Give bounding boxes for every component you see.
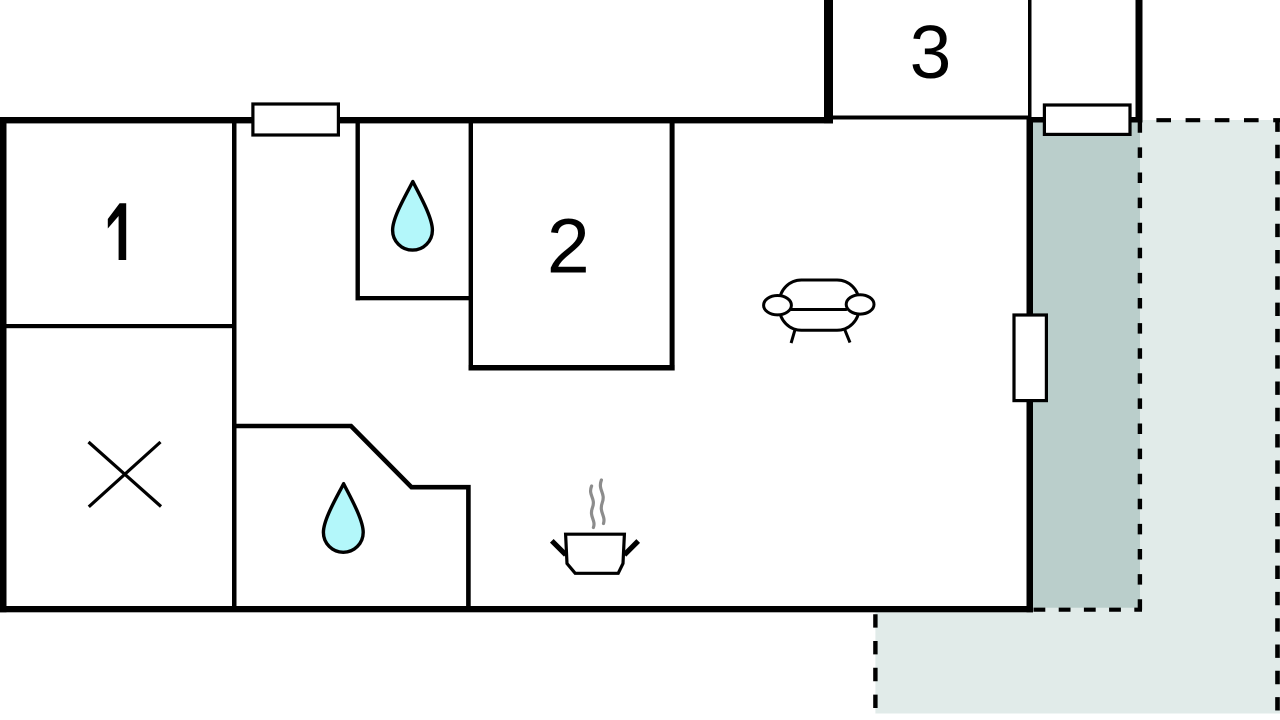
svg-text:2: 2: [547, 204, 590, 290]
svg-text:3: 3: [910, 10, 952, 94]
